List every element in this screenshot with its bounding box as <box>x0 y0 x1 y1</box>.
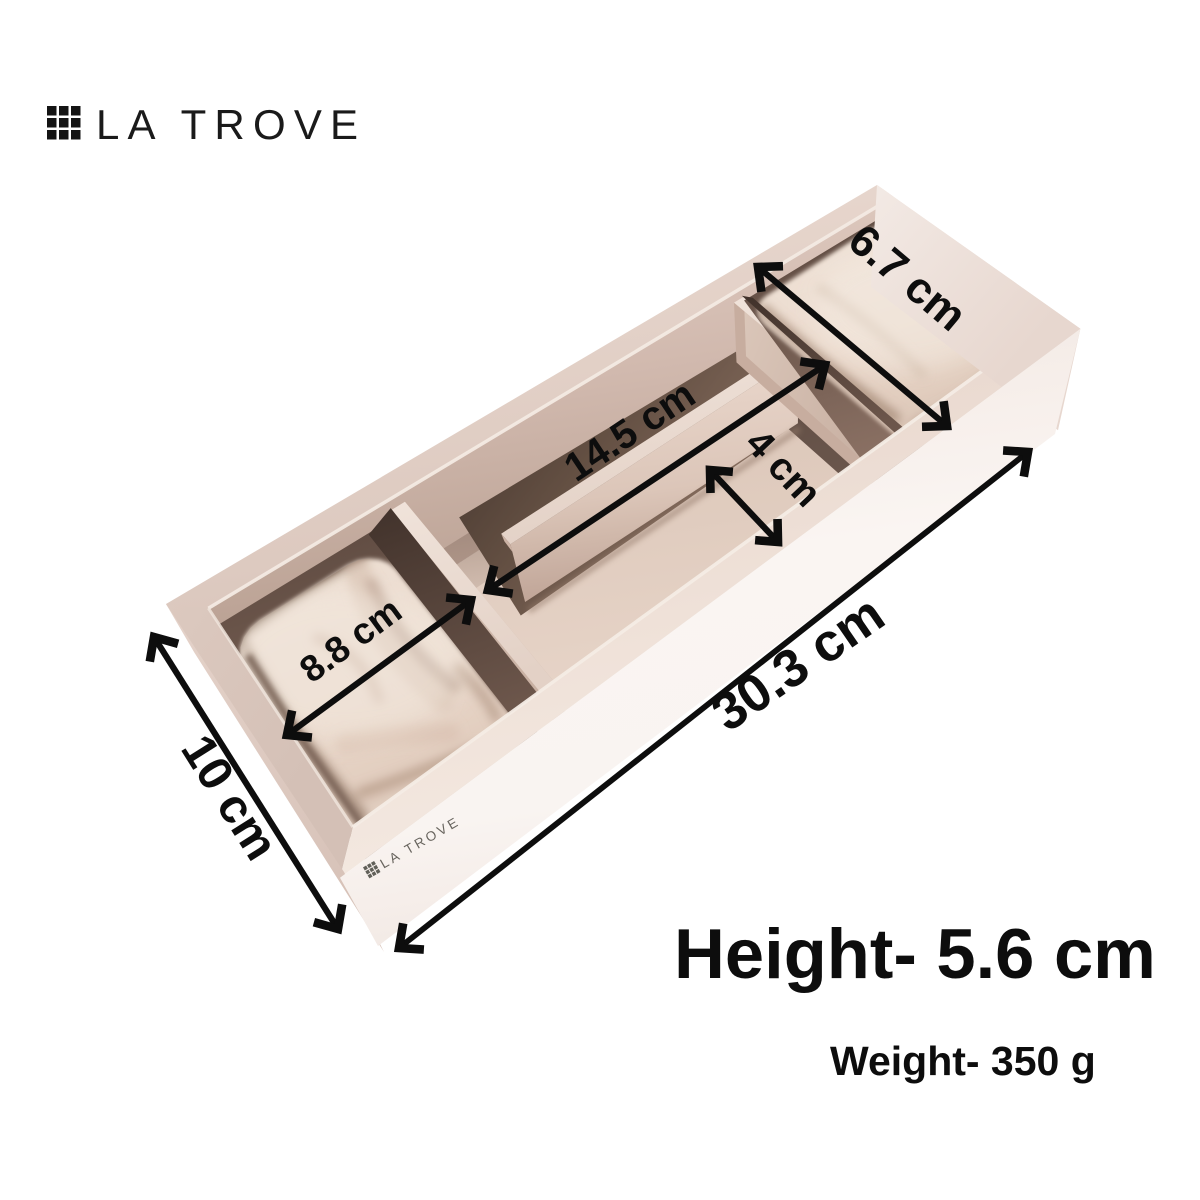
svg-text:Height- 5.6 cm: Height- 5.6 cm <box>674 914 1156 993</box>
svg-text:LA TROVE: LA TROVE <box>96 101 366 148</box>
svg-text:Weight- 350 g: Weight- 350 g <box>830 1038 1096 1084</box>
